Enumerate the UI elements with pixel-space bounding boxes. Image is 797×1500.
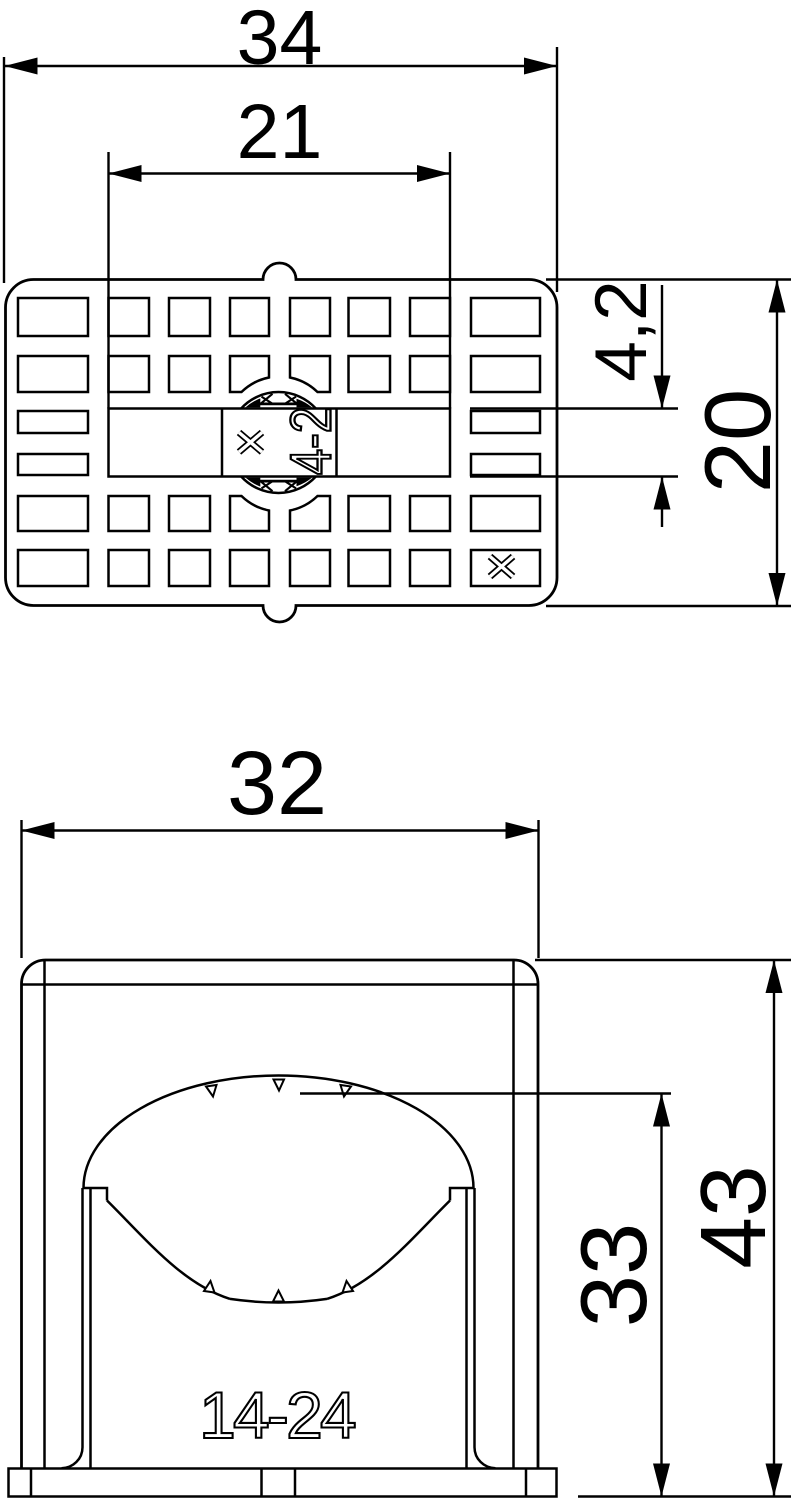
svg-text:43: 43 <box>681 1165 785 1268</box>
svg-text:4,2: 4,2 <box>581 280 662 381</box>
svg-text:4-2: 4-2 <box>280 407 343 475</box>
svg-text:32: 32 <box>227 734 327 834</box>
svg-text:33: 33 <box>561 1223 666 1328</box>
svg-text:14-24: 14-24 <box>199 1378 355 1452</box>
svg-text:20: 20 <box>685 389 790 494</box>
svg-text:21: 21 <box>237 89 323 175</box>
svg-text:34: 34 <box>237 0 323 81</box>
